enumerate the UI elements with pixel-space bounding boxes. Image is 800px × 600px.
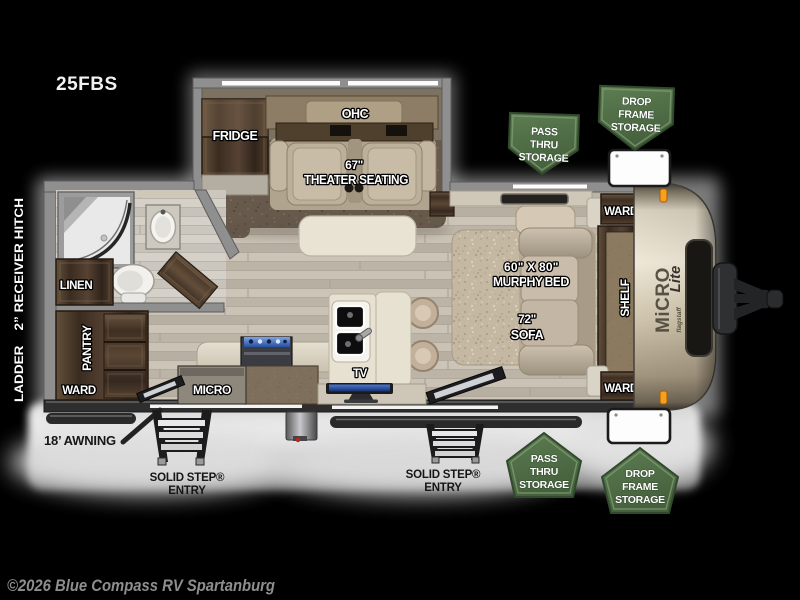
svg-text:SOFA: SOFA <box>511 328 544 342</box>
svg-text:ENTRY: ENTRY <box>168 485 206 497</box>
svg-text:STORAGE: STORAGE <box>611 121 661 135</box>
svg-text:©2026 Blue Compass RV Spartanb: ©2026 Blue Compass RV Spartanburg <box>7 577 275 595</box>
svg-text:PASS: PASS <box>531 453 558 465</box>
svg-text:SOLID STEP®: SOLID STEP® <box>150 472 225 484</box>
svg-text:WARD: WARD <box>604 383 638 395</box>
svg-text:LADDER 2” RECEIVER HITCH: LADDER 2” RECEIVER HITCH <box>14 198 26 402</box>
svg-text:LINEN: LINEN <box>60 280 93 292</box>
svg-text:THRU: THRU <box>530 139 558 152</box>
svg-text:60" X 80": 60" X 80" <box>504 260 558 274</box>
svg-text:WARD: WARD <box>62 385 96 397</box>
svg-text:STORAGE: STORAGE <box>615 494 665 506</box>
svg-text:SOLID STEP®: SOLID STEP® <box>406 469 481 481</box>
svg-text:OHC: OHC <box>342 107 369 121</box>
svg-text:FRAME: FRAME <box>618 108 655 121</box>
svg-text:WARD: WARD <box>604 206 638 218</box>
svg-text:MICRO: MICRO <box>193 383 231 397</box>
svg-text:THRU: THRU <box>530 466 558 478</box>
svg-text:PANTRY: PANTRY <box>80 325 94 371</box>
svg-text:flagstaff: flagstaff <box>676 307 683 333</box>
svg-text:SHELF: SHELF <box>618 279 632 316</box>
svg-text:ENTRY: ENTRY <box>424 482 462 494</box>
svg-text:DROP: DROP <box>625 468 654 480</box>
svg-text:TV: TV <box>353 368 368 380</box>
svg-text:PASS: PASS <box>531 126 558 139</box>
svg-text:18’ AWNING: 18’ AWNING <box>44 433 116 448</box>
svg-text:THEATER SEATING: THEATER SEATING <box>304 173 408 187</box>
svg-text:Lite: Lite <box>667 266 684 293</box>
svg-text:DROP: DROP <box>622 96 652 109</box>
svg-text:STORAGE: STORAGE <box>518 151 568 165</box>
svg-text:25FBS: 25FBS <box>56 74 118 95</box>
svg-text:67": 67" <box>345 158 363 172</box>
svg-text:FRIDGE: FRIDGE <box>213 129 258 143</box>
svg-text:STORAGE: STORAGE <box>519 479 569 491</box>
svg-text:FRAME: FRAME <box>622 481 658 493</box>
svg-text:72": 72" <box>518 312 536 326</box>
svg-text:MURPHY BED: MURPHY BED <box>493 275 569 289</box>
